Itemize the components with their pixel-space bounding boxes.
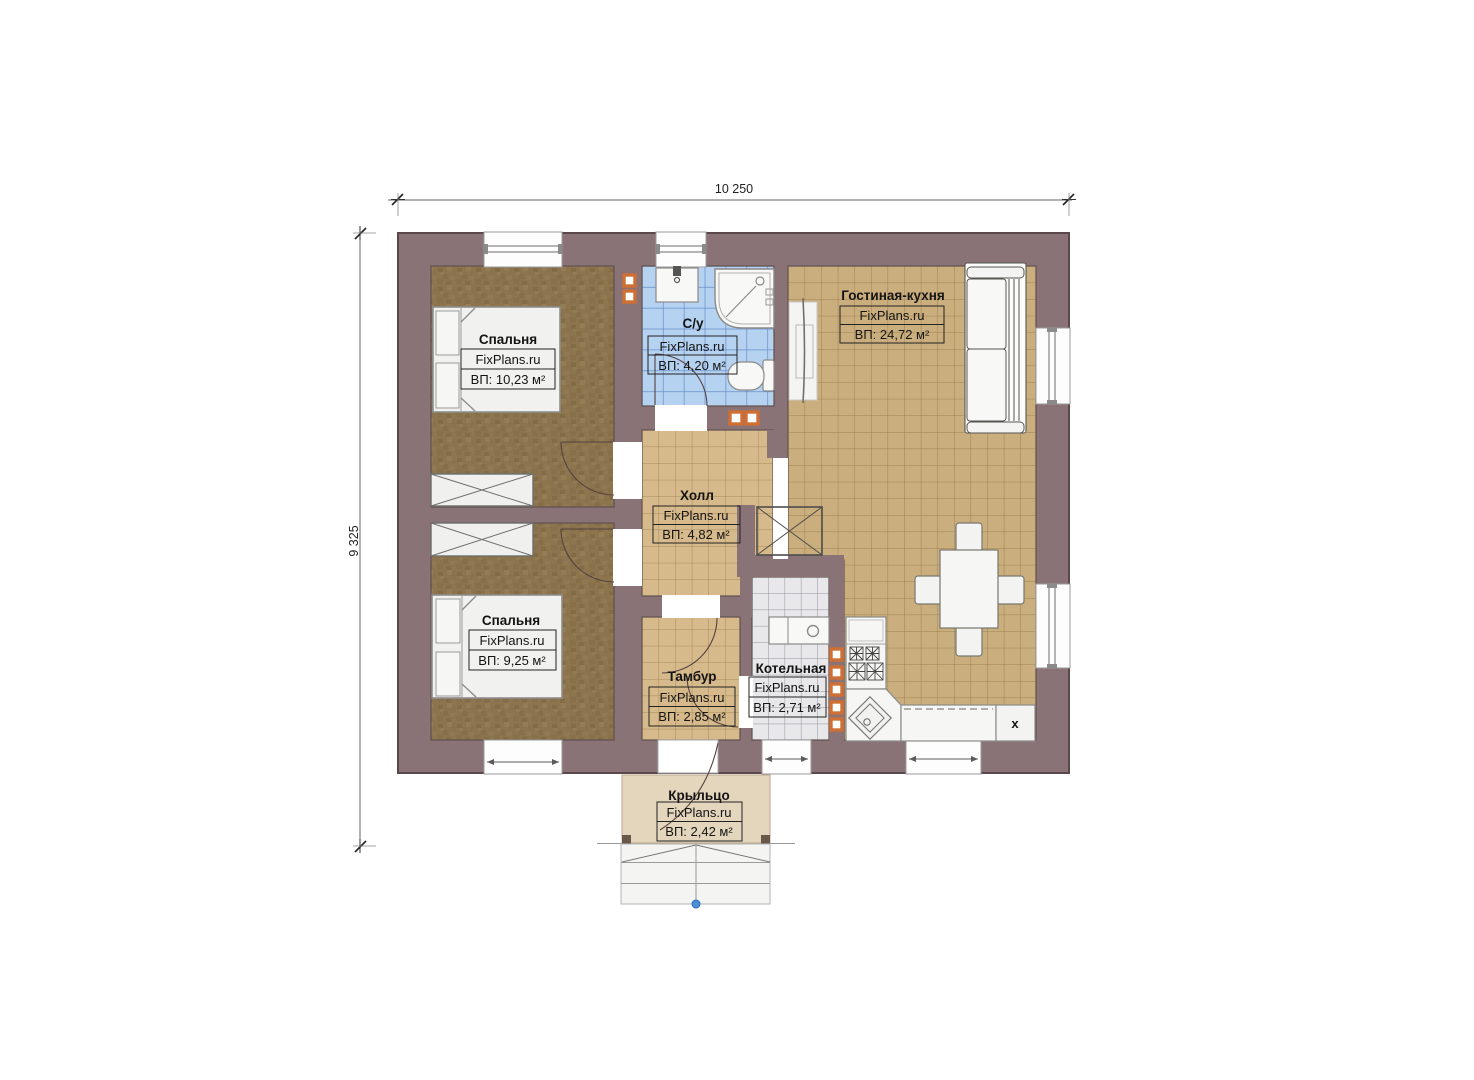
svg-text:Крыльцо: Крыльцо [668,788,729,803]
svg-text:Спальня: Спальня [479,332,537,347]
svg-text:С/у: С/у [682,316,704,331]
svg-text:x: x [1011,716,1019,731]
svg-text:FixPlans.ru: FixPlans.ru [659,339,724,354]
svg-text:ВП: 4,20 м²: ВП: 4,20 м² [658,358,726,373]
svg-text:ВП: 2,42 м²: ВП: 2,42 м² [665,824,733,839]
svg-text:Гостиная-кухня: Гостиная-кухня [841,288,944,303]
svg-text:ВП: 24,72 м²: ВП: 24,72 м² [855,327,930,342]
svg-text:Спальня: Спальня [482,613,540,628]
svg-text:FixPlans.ru: FixPlans.ru [663,508,728,523]
svg-text:FixPlans.ru: FixPlans.ru [754,680,819,695]
svg-text:FixPlans.ru: FixPlans.ru [666,805,731,820]
svg-text:ВП: 9,25 м²: ВП: 9,25 м² [478,653,546,668]
svg-text:ВП: 2,71 м²: ВП: 2,71 м² [753,700,821,715]
svg-text:FixPlans.ru: FixPlans.ru [479,633,544,648]
svg-text:ВП: 10,23 м²: ВП: 10,23 м² [471,372,546,387]
svg-text:FixPlans.ru: FixPlans.ru [475,352,540,367]
svg-text:Котельная: Котельная [756,661,827,676]
svg-text:ВП: 2,85 м²: ВП: 2,85 м² [658,709,726,724]
svg-text:FixPlans.ru: FixPlans.ru [859,308,924,323]
svg-text:9 325: 9 325 [347,525,361,556]
svg-text:FixPlans.ru: FixPlans.ru [659,690,724,705]
svg-text:Холл: Холл [680,488,714,503]
svg-text:ВП: 4,82 м²: ВП: 4,82 м² [662,527,730,542]
svg-text:10 250: 10 250 [715,182,753,196]
svg-text:Тамбур: Тамбур [668,669,717,684]
